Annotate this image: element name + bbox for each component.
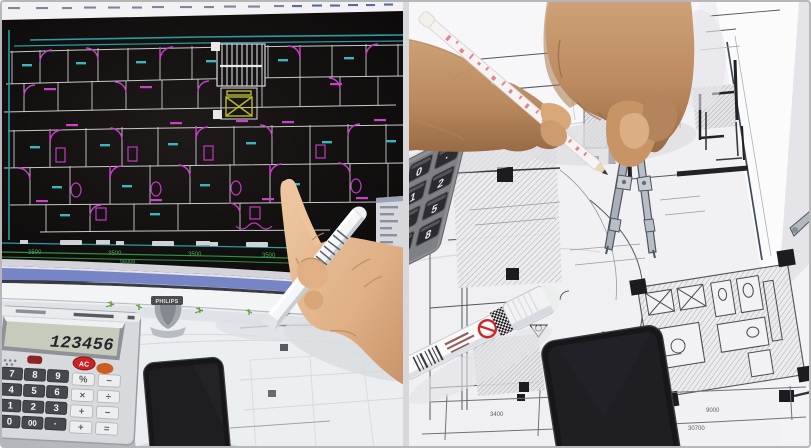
- svg-text:3400: 3400: [490, 412, 504, 418]
- svg-text:3: 3: [53, 403, 59, 414]
- svg-text:7: 7: [9, 368, 15, 379]
- svg-text:%: %: [79, 374, 89, 385]
- svg-text:×: ×: [79, 390, 86, 401]
- svg-text:PHILIPS: PHILIPS: [155, 299, 178, 305]
- svg-text:−: −: [106, 376, 113, 387]
- svg-text:·: ·: [54, 419, 58, 430]
- svg-text:+: +: [79, 406, 86, 417]
- svg-text:−: −: [104, 408, 111, 419]
- svg-text:AC: AC: [79, 361, 89, 369]
- svg-text:2: 2: [30, 402, 36, 413]
- svg-text:30700: 30700: [688, 426, 705, 432]
- svg-text:0: 0: [7, 416, 13, 427]
- svg-text:=: =: [104, 424, 111, 435]
- svg-text:9: 9: [55, 371, 61, 382]
- svg-text:9000: 9000: [706, 408, 720, 414]
- svg-text:8: 8: [32, 370, 38, 381]
- svg-text:00: 00: [28, 419, 38, 428]
- svg-text:6: 6: [54, 387, 60, 398]
- svg-text:÷: ÷: [105, 392, 111, 403]
- svg-text:+: +: [78, 422, 85, 433]
- svg-text:123456: 123456: [49, 334, 114, 356]
